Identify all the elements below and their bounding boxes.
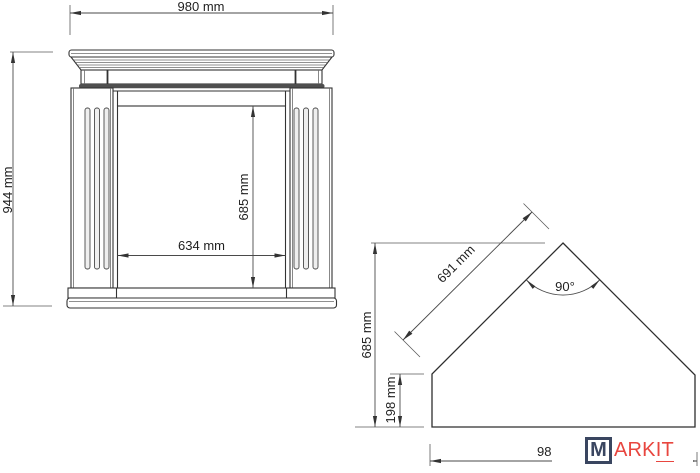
left-plinth: [68, 288, 117, 298]
arrowhead-icon: [118, 253, 129, 257]
shelf-band: [79, 84, 325, 88]
logo-wordmark: ARKIT: [614, 439, 674, 462]
corner-plan-view: 685 mm 198 mm 691 mm 90°: [355, 204, 697, 467]
drawing-canvas: 980 mm 944 mm: [0, 0, 700, 473]
flute-groove: [294, 108, 299, 269]
arrowhead-icon: [373, 243, 377, 254]
flute-groove: [104, 108, 109, 269]
arrowhead-icon: [275, 253, 286, 257]
logo-monogram-box: M: [585, 437, 612, 464]
logo-wordmark-prefix: ARK: [614, 439, 656, 461]
dim-side-return: 198 mm: [383, 374, 424, 427]
arrowhead-icon: [398, 416, 402, 427]
arrowhead-icon: [322, 11, 333, 15]
right-plinth: [287, 288, 336, 298]
dim-label-depth: 685 mm: [359, 312, 374, 359]
flute-groove: [313, 108, 318, 269]
dim-label-opening-width: 634 mm: [178, 238, 225, 253]
markit-logo: M ARKIT: [552, 431, 693, 470]
arrowhead-icon: [398, 374, 402, 385]
arrowhead-icon: [70, 11, 81, 15]
right-column: [290, 88, 332, 288]
dim-opening-height: 685 mm: [236, 106, 255, 288]
left-column: [71, 88, 113, 288]
dim-label-corner-angle: 90°: [555, 279, 575, 294]
flute-groove: [85, 108, 90, 269]
flute-groove: [95, 108, 100, 269]
dim-label-overall-height: 944 mm: [0, 167, 15, 214]
arrowhead-icon: [373, 416, 377, 427]
dim-label-overall-width: 980 mm: [178, 0, 225, 14]
frieze-panel: [81, 70, 322, 84]
dim-opening-width: 634 mm: [118, 238, 286, 258]
flute-groove: [304, 108, 309, 269]
base-slab: [67, 298, 337, 308]
arrowhead-icon: [251, 106, 255, 117]
technical-drawing-page: 980 mm 944 mm: [0, 0, 700, 473]
logo-wordmark-suffix: IT: [656, 439, 674, 462]
arrowhead-icon: [430, 459, 441, 463]
dim-overall-height: 944 mm: [0, 52, 53, 306]
fireplace-opening: [118, 106, 286, 288]
arrowhead-icon: [251, 277, 255, 288]
front-view: 980 mm 944 mm: [0, 0, 337, 308]
corner-footprint: [432, 243, 695, 427]
dim-label-side-return: 198 mm: [383, 377, 398, 424]
dim-label-panel-width: 691 mm: [434, 242, 478, 286]
fireplace-opening-frame: [113, 91, 290, 288]
arrowhead-icon: [11, 295, 15, 306]
dim-label-opening-height: 685 mm: [236, 174, 251, 221]
arrowhead-icon: [11, 52, 15, 63]
dim-overall-width: 980 mm: [70, 0, 333, 35]
crown-molding: [71, 57, 332, 70]
